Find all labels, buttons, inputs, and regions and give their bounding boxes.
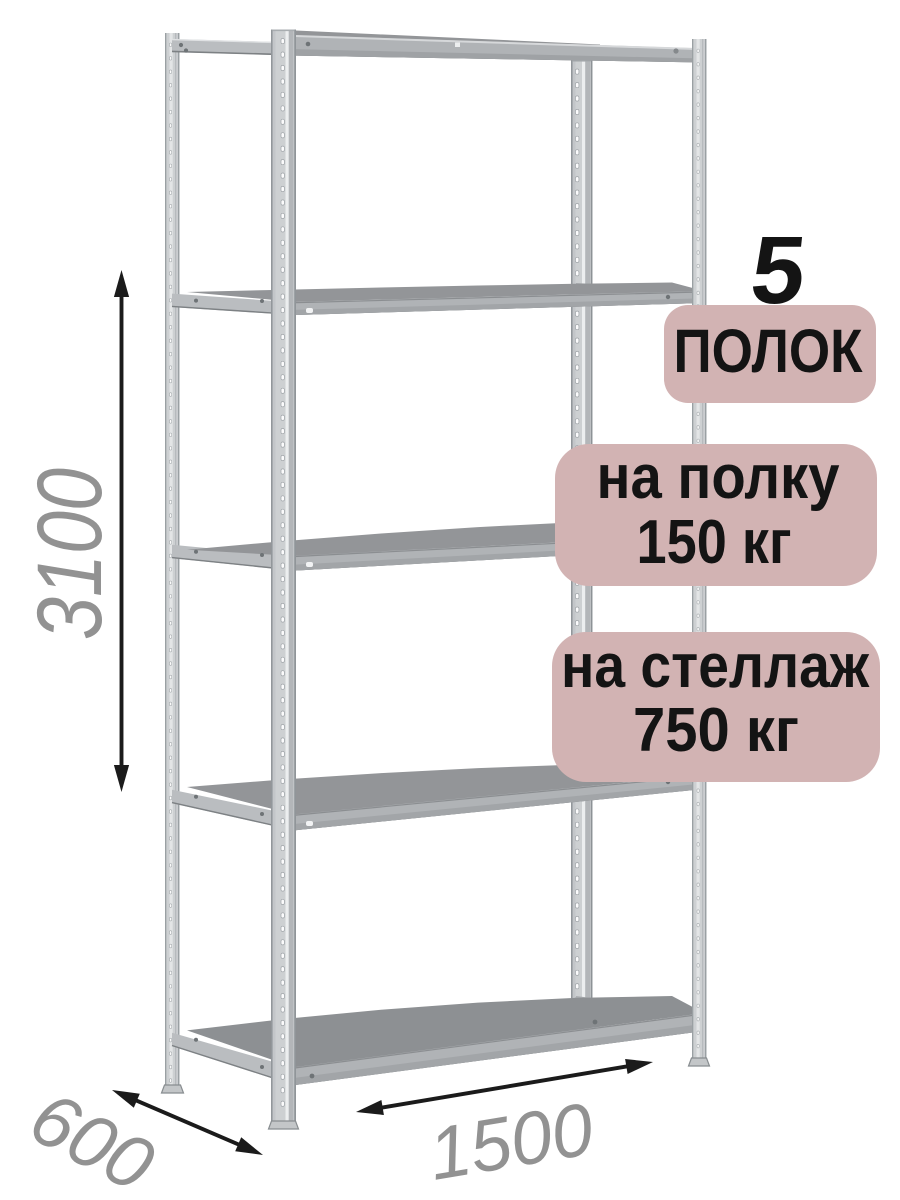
svg-text:750 кг: 750 кг bbox=[633, 696, 799, 765]
svg-text:на стеллаж: на стеллаж bbox=[561, 632, 870, 701]
svg-text:150 кг: 150 кг bbox=[637, 508, 792, 577]
svg-text:на полку: на полку bbox=[597, 443, 840, 512]
svg-text:3100: 3100 bbox=[19, 468, 121, 640]
svg-text:ПОЛОК: ПОЛОК bbox=[674, 317, 864, 385]
